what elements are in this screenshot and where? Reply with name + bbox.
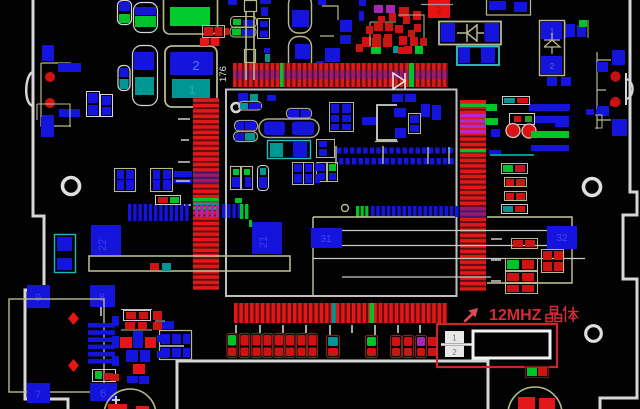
svg-text:9: 9 xyxy=(35,292,41,304)
svg-text:2: 2 xyxy=(192,58,199,73)
svg-text:7: 7 xyxy=(35,389,41,401)
svg-text:32: 32 xyxy=(556,233,568,244)
svg-text:12MHZ: 12MHZ xyxy=(489,307,542,324)
svg-text:2: 2 xyxy=(550,62,555,71)
svg-text:1: 1 xyxy=(452,334,457,343)
svg-text:31: 31 xyxy=(320,234,332,245)
svg-text:22: 22 xyxy=(97,239,109,251)
svg-text:1: 1 xyxy=(189,83,196,97)
svg-text:21: 21 xyxy=(258,236,270,248)
svg-text:2: 2 xyxy=(452,348,457,357)
svg-text:176: 176 xyxy=(218,66,229,82)
svg-text:2: 2 xyxy=(436,5,441,15)
svg-text:6: 6 xyxy=(100,388,106,400)
